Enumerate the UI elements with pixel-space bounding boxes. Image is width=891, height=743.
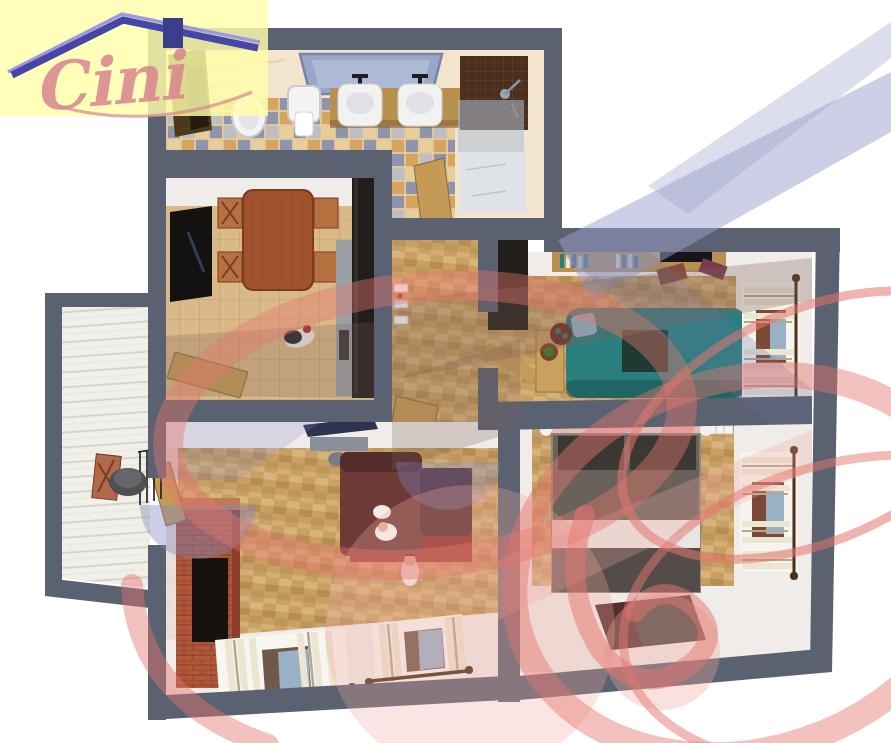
rod-finial xyxy=(790,572,798,580)
firebox xyxy=(192,558,228,642)
wall-bath-hall xyxy=(392,218,562,240)
table-top xyxy=(114,468,142,488)
dining-tv-panel xyxy=(170,206,212,302)
balcony-floor xyxy=(62,300,150,588)
sink-left-basin xyxy=(346,92,374,114)
sink-right-basin xyxy=(406,92,434,114)
floor-plan-svg: Cini xyxy=(0,0,891,743)
floor-plan-screenshot: Cini xyxy=(0,0,891,743)
logo-group: Cini xyxy=(0,0,268,127)
shower-enclosure xyxy=(458,50,544,218)
wall-bathroom-right xyxy=(544,28,562,240)
shower-tray xyxy=(460,150,526,212)
wall-bath-dining xyxy=(148,150,392,178)
window-glass-pane xyxy=(766,490,784,534)
chair xyxy=(314,252,338,282)
chair xyxy=(314,198,338,228)
wall-balcony-left xyxy=(45,293,62,592)
wall-balcony-top xyxy=(45,293,150,307)
shower-column xyxy=(528,50,544,218)
book xyxy=(560,254,564,268)
wall-dining-left xyxy=(148,150,166,412)
bidet-front xyxy=(295,112,313,136)
desk-body xyxy=(310,437,368,451)
